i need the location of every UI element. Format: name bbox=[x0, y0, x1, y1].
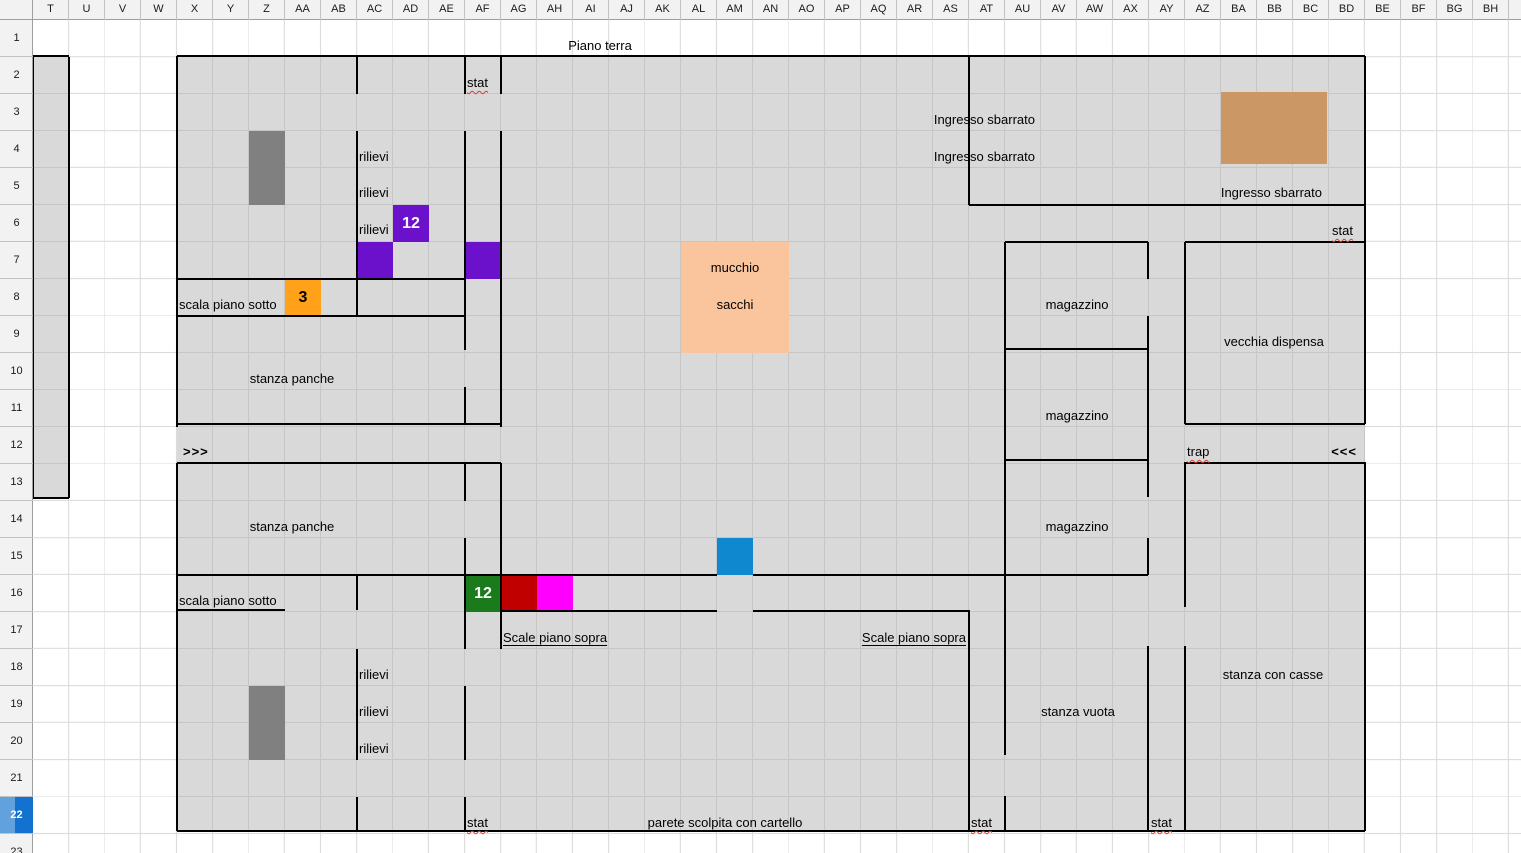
map-wall-v-24 bbox=[1147, 316, 1149, 497]
column-header-X[interactable]: X bbox=[177, 0, 213, 20]
map-wall-v-10 bbox=[464, 131, 466, 350]
row-header-4[interactable]: 4 bbox=[0, 131, 33, 168]
column-headers: TUVWXYZAAABACADAEAFAGAHAIAJAKALAMANAOAPA… bbox=[33, 0, 1521, 20]
label-scala-piano-sotto-r8: scala piano sotto bbox=[179, 298, 277, 312]
label-rilievi-r18: rilievi bbox=[359, 668, 389, 682]
map-wall-v-31 bbox=[1364, 462, 1366, 831]
label-mucchio: mucchio bbox=[711, 261, 759, 275]
column-header-BC[interactable]: BC bbox=[1293, 0, 1329, 20]
column-header-AQ[interactable]: AQ bbox=[861, 0, 897, 20]
row-header-21[interactable]: 21 bbox=[0, 760, 33, 797]
sheet-grid[interactable]: 12312Piano terrastatIngresso sbarratoril… bbox=[0, 0, 1521, 853]
map-wall-v-28 bbox=[1184, 462, 1186, 607]
column-header-W[interactable]: W bbox=[141, 0, 177, 20]
label-rilievi-r19: rilievi bbox=[359, 705, 389, 719]
map-wall-v-6 bbox=[356, 575, 358, 610]
map-wall-h-15 bbox=[753, 574, 1148, 576]
map-wall-v-15 bbox=[464, 797, 466, 831]
column-header-AS[interactable]: AS bbox=[933, 0, 969, 20]
row-header-9[interactable]: 9 bbox=[0, 316, 33, 353]
column-header-T[interactable]: T bbox=[33, 0, 69, 20]
column-header-AL[interactable]: AL bbox=[681, 0, 717, 20]
row-header-23[interactable]: 23 bbox=[0, 834, 33, 853]
map-wall-h-18 bbox=[753, 610, 969, 612]
row-header-18[interactable]: 18 bbox=[0, 649, 33, 686]
label-scala-piano-sotto-r16: scala piano sotto bbox=[179, 594, 277, 608]
column-header-partial[interactable] bbox=[1509, 0, 1521, 20]
row-header-22[interactable]: 22 bbox=[0, 797, 33, 834]
label-stat-at22: stat bbox=[971, 816, 992, 830]
column-header-BF[interactable]: BF bbox=[1401, 0, 1437, 20]
label-scale-piano-sopra-east: Scale piano sopra bbox=[862, 631, 966, 645]
blue-cell-AM15[interactable] bbox=[717, 538, 753, 575]
map-wall-h-17 bbox=[501, 610, 717, 612]
map-wall-v-22 bbox=[1004, 796, 1006, 831]
label-piano-terra: Piano terra bbox=[568, 39, 632, 53]
map-wall-h-4 bbox=[1185, 241, 1365, 243]
green-cell-AF16[interactable]: 12 bbox=[465, 575, 501, 612]
label-stat-af22: stat bbox=[467, 816, 488, 830]
column-header-BA[interactable]: BA bbox=[1221, 0, 1257, 20]
map-wall-v-4 bbox=[356, 57, 358, 94]
map-wall-v-1 bbox=[68, 57, 70, 498]
column-header-AF[interactable]: AF bbox=[465, 0, 501, 20]
purple-cell-AC7[interactable] bbox=[357, 242, 393, 279]
column-header-AH[interactable]: AH bbox=[537, 0, 573, 20]
row-header-3[interactable]: 3 bbox=[0, 94, 33, 131]
row-header-14[interactable]: 14 bbox=[0, 501, 33, 538]
purple-cell-AD6-number: 12 bbox=[402, 216, 420, 232]
gray-cell-Z4[interactable] bbox=[249, 131, 285, 168]
row-header-13[interactable]: 13 bbox=[0, 464, 33, 501]
map-wall-v-9 bbox=[464, 57, 466, 94]
column-header-AK[interactable]: AK bbox=[645, 0, 681, 20]
label-stanza-panche-r10: stanza panche bbox=[250, 372, 335, 386]
tan-rectangle[interactable] bbox=[1221, 92, 1327, 164]
map-wall-h-5 bbox=[177, 278, 465, 280]
row-header-5[interactable]: 5 bbox=[0, 168, 33, 205]
label-rilievi-r6: rilievi bbox=[359, 223, 389, 237]
label-trap: trap bbox=[1187, 445, 1209, 459]
map-wall-h-14 bbox=[177, 574, 717, 576]
label-ingresso-sbarrato-r4: Ingresso sbarrato bbox=[934, 150, 1035, 164]
label-stat-bd6: stat bbox=[1332, 224, 1353, 238]
gray-cell-Z5[interactable] bbox=[249, 168, 285, 205]
label-stat-af2: stat bbox=[467, 76, 488, 90]
label-scale-piano-sopra-west: Scale piano sopra bbox=[503, 631, 607, 645]
map-wall-v-27 bbox=[1184, 242, 1186, 424]
column-header-BB[interactable]: BB bbox=[1257, 0, 1293, 20]
row-header-6[interactable]: 6 bbox=[0, 205, 33, 242]
gray-cell-Z19[interactable] bbox=[249, 686, 285, 723]
column-header-AT[interactable]: AT bbox=[969, 0, 1005, 20]
label-parete-scolpita: parete scolpita con cartello bbox=[648, 816, 803, 830]
map-wall-h-11 bbox=[177, 462, 501, 464]
column-header-AB[interactable]: AB bbox=[321, 0, 357, 20]
row-header-11[interactable]: 11 bbox=[0, 390, 33, 427]
map-wall-v-11 bbox=[464, 387, 466, 424]
map-wall-h-8 bbox=[177, 423, 501, 425]
column-header-AM[interactable]: AM bbox=[717, 0, 753, 20]
column-header-AJ[interactable]: AJ bbox=[609, 0, 645, 20]
row-header-12[interactable]: 12 bbox=[0, 427, 33, 464]
map-wall-v-8 bbox=[356, 797, 358, 831]
map-wall-v-26 bbox=[1147, 646, 1149, 831]
map-wall-v-29 bbox=[1184, 646, 1186, 831]
label-ingresso-sbarrato-r3: Ingresso sbarrato bbox=[934, 113, 1035, 127]
column-header-AZ[interactable]: AZ bbox=[1185, 0, 1221, 20]
label-stanza-vuota: stanza vuota bbox=[1041, 705, 1115, 719]
column-header-AR[interactable]: AR bbox=[897, 0, 933, 20]
row-headers: 1234567891011121314151617181920212223 bbox=[0, 20, 33, 853]
map-wall-h-6 bbox=[177, 315, 465, 317]
magenta-cell-AH16[interactable] bbox=[537, 575, 573, 612]
map-wall-v-13 bbox=[464, 538, 466, 649]
label-stanza-con-casse: stanza con casse bbox=[1223, 668, 1323, 682]
column-header-BH[interactable]: BH bbox=[1473, 0, 1509, 20]
select-all-corner[interactable] bbox=[0, 0, 33, 20]
column-header-AX[interactable]: AX bbox=[1113, 0, 1149, 20]
map-wall-v-14 bbox=[464, 686, 466, 760]
row-header-16[interactable]: 16 bbox=[0, 575, 33, 612]
map-wall-v-16 bbox=[500, 57, 502, 94]
column-header-AI[interactable]: AI bbox=[573, 0, 609, 20]
map-wall-v-23 bbox=[1147, 242, 1149, 279]
map-wall-v-17 bbox=[500, 131, 502, 427]
stairs-strip-T-column bbox=[33, 57, 69, 498]
row-header-2[interactable]: 2 bbox=[0, 57, 33, 94]
map-wall-h-16 bbox=[177, 609, 285, 611]
column-header-AW[interactable]: AW bbox=[1077, 0, 1113, 20]
map-wall-v-5 bbox=[356, 131, 358, 316]
label-arrows-west: <<< bbox=[1331, 445, 1357, 459]
map-wall-v-7 bbox=[356, 649, 358, 760]
column-header-BD[interactable]: BD bbox=[1329, 0, 1365, 20]
column-header-BG[interactable]: BG bbox=[1437, 0, 1473, 20]
label-magazzino-r11: magazzino bbox=[1046, 409, 1109, 423]
row-header-15[interactable]: 15 bbox=[0, 538, 33, 575]
label-rilievi-r20: rilievi bbox=[359, 742, 389, 756]
map-wall-h-0 bbox=[33, 55, 69, 57]
map-wall-h-9 bbox=[1185, 423, 1365, 425]
row-header-10[interactable]: 10 bbox=[0, 353, 33, 390]
map-wall-v-12 bbox=[464, 463, 466, 501]
column-header-U[interactable]: U bbox=[69, 0, 105, 20]
orange-cell-AA8[interactable]: 3 bbox=[285, 279, 321, 316]
row-header-1[interactable]: 1 bbox=[0, 20, 33, 57]
gray-cell-Z20[interactable] bbox=[249, 723, 285, 760]
purple-cell-AD6[interactable]: 12 bbox=[393, 205, 429, 242]
darkred-cell-AG16[interactable] bbox=[501, 575, 537, 612]
column-header-V[interactable]: V bbox=[105, 0, 141, 20]
label-arrows-east: >>> bbox=[183, 445, 209, 459]
label-vecchia-dispensa: vecchia dispensa bbox=[1224, 335, 1324, 349]
orange-cell-AA8-number: 3 bbox=[299, 290, 308, 306]
map-wall-h-7 bbox=[1005, 348, 1148, 350]
map-wall-v-21 bbox=[1004, 242, 1006, 755]
label-sacchi: sacchi bbox=[717, 298, 754, 312]
label-stat-ay22: stat bbox=[1151, 816, 1172, 830]
map-wall-v-18 bbox=[500, 463, 502, 649]
row-header-19[interactable]: 19 bbox=[0, 686, 33, 723]
column-header-AV[interactable]: AV bbox=[1041, 0, 1077, 20]
label-rilievi-r5: rilievi bbox=[359, 186, 389, 200]
column-header-AC[interactable]: AC bbox=[357, 0, 393, 20]
column-header-Z[interactable]: Z bbox=[249, 0, 285, 20]
map-wall-v-2 bbox=[176, 56, 178, 427]
row-header-20[interactable]: 20 bbox=[0, 723, 33, 760]
label-stanza-panche-r14: stanza panche bbox=[250, 520, 335, 534]
row-header-17[interactable]: 17 bbox=[0, 612, 33, 649]
purple-cell-AF7[interactable] bbox=[465, 242, 501, 279]
label-magazzino-r8: magazzino bbox=[1046, 298, 1109, 312]
label-ingresso-sbarrato-r5: Ingresso sbarrato bbox=[1221, 186, 1322, 200]
column-header-AY[interactable]: AY bbox=[1149, 0, 1185, 20]
map-wall-v-3 bbox=[176, 463, 178, 831]
label-magazzino-r14: magazzino bbox=[1046, 520, 1109, 534]
column-header-AG[interactable]: AG bbox=[501, 0, 537, 20]
map-wall-h-12 bbox=[1185, 462, 1365, 464]
map-wall-h-2 bbox=[969, 204, 1365, 206]
column-header-AO[interactable]: AO bbox=[789, 0, 825, 20]
column-header-AE[interactable]: AE bbox=[429, 0, 465, 20]
map-wall-v-25 bbox=[1147, 538, 1149, 575]
row-header-7[interactable]: 7 bbox=[0, 242, 33, 279]
column-header-AU[interactable]: AU bbox=[1005, 0, 1041, 20]
map-wall-v-30 bbox=[1364, 56, 1366, 424]
row-header-8[interactable]: 8 bbox=[0, 279, 33, 316]
map-wall-v-20 bbox=[968, 610, 970, 831]
column-header-BE[interactable]: BE bbox=[1365, 0, 1401, 20]
green-cell-AF16-number: 12 bbox=[474, 586, 492, 602]
column-header-AD[interactable]: AD bbox=[393, 0, 429, 20]
column-header-AA[interactable]: AA bbox=[285, 0, 321, 20]
label-rilievi-r4: rilievi bbox=[359, 150, 389, 164]
map-wall-h-3 bbox=[1005, 241, 1148, 243]
column-header-Y[interactable]: Y bbox=[213, 0, 249, 20]
column-header-AP[interactable]: AP bbox=[825, 0, 861, 20]
map-wall-h-10 bbox=[1005, 459, 1148, 461]
map-wall-v-19 bbox=[968, 56, 970, 205]
spreadsheet-window: 12312Piano terrastatIngresso sbarratoril… bbox=[0, 0, 1521, 853]
column-header-AN[interactable]: AN bbox=[753, 0, 789, 20]
map-wall-h-13 bbox=[33, 497, 69, 499]
